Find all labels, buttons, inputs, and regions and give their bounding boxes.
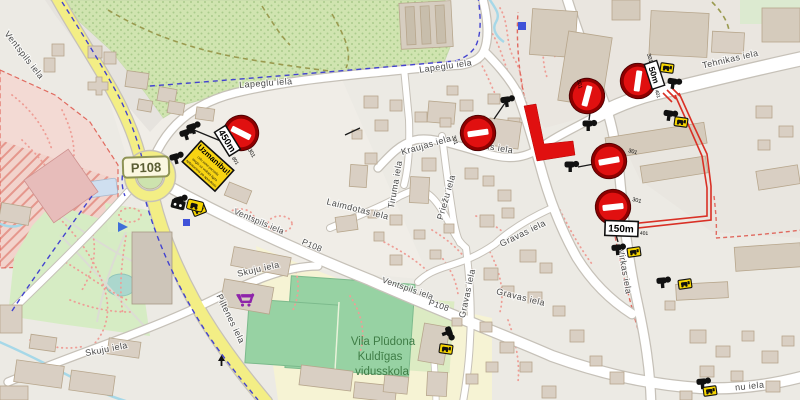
svg-text:Kuldīgas: Kuldīgas (358, 351, 403, 363)
svg-text:P108: P108 (131, 159, 162, 175)
svg-text:401: 401 (640, 231, 649, 237)
svg-text:vidusskola: vidusskola (355, 366, 409, 378)
svg-text:150m: 150m (608, 224, 634, 236)
svg-text:Vila Plūdona: Vila Plūdona (351, 336, 416, 348)
